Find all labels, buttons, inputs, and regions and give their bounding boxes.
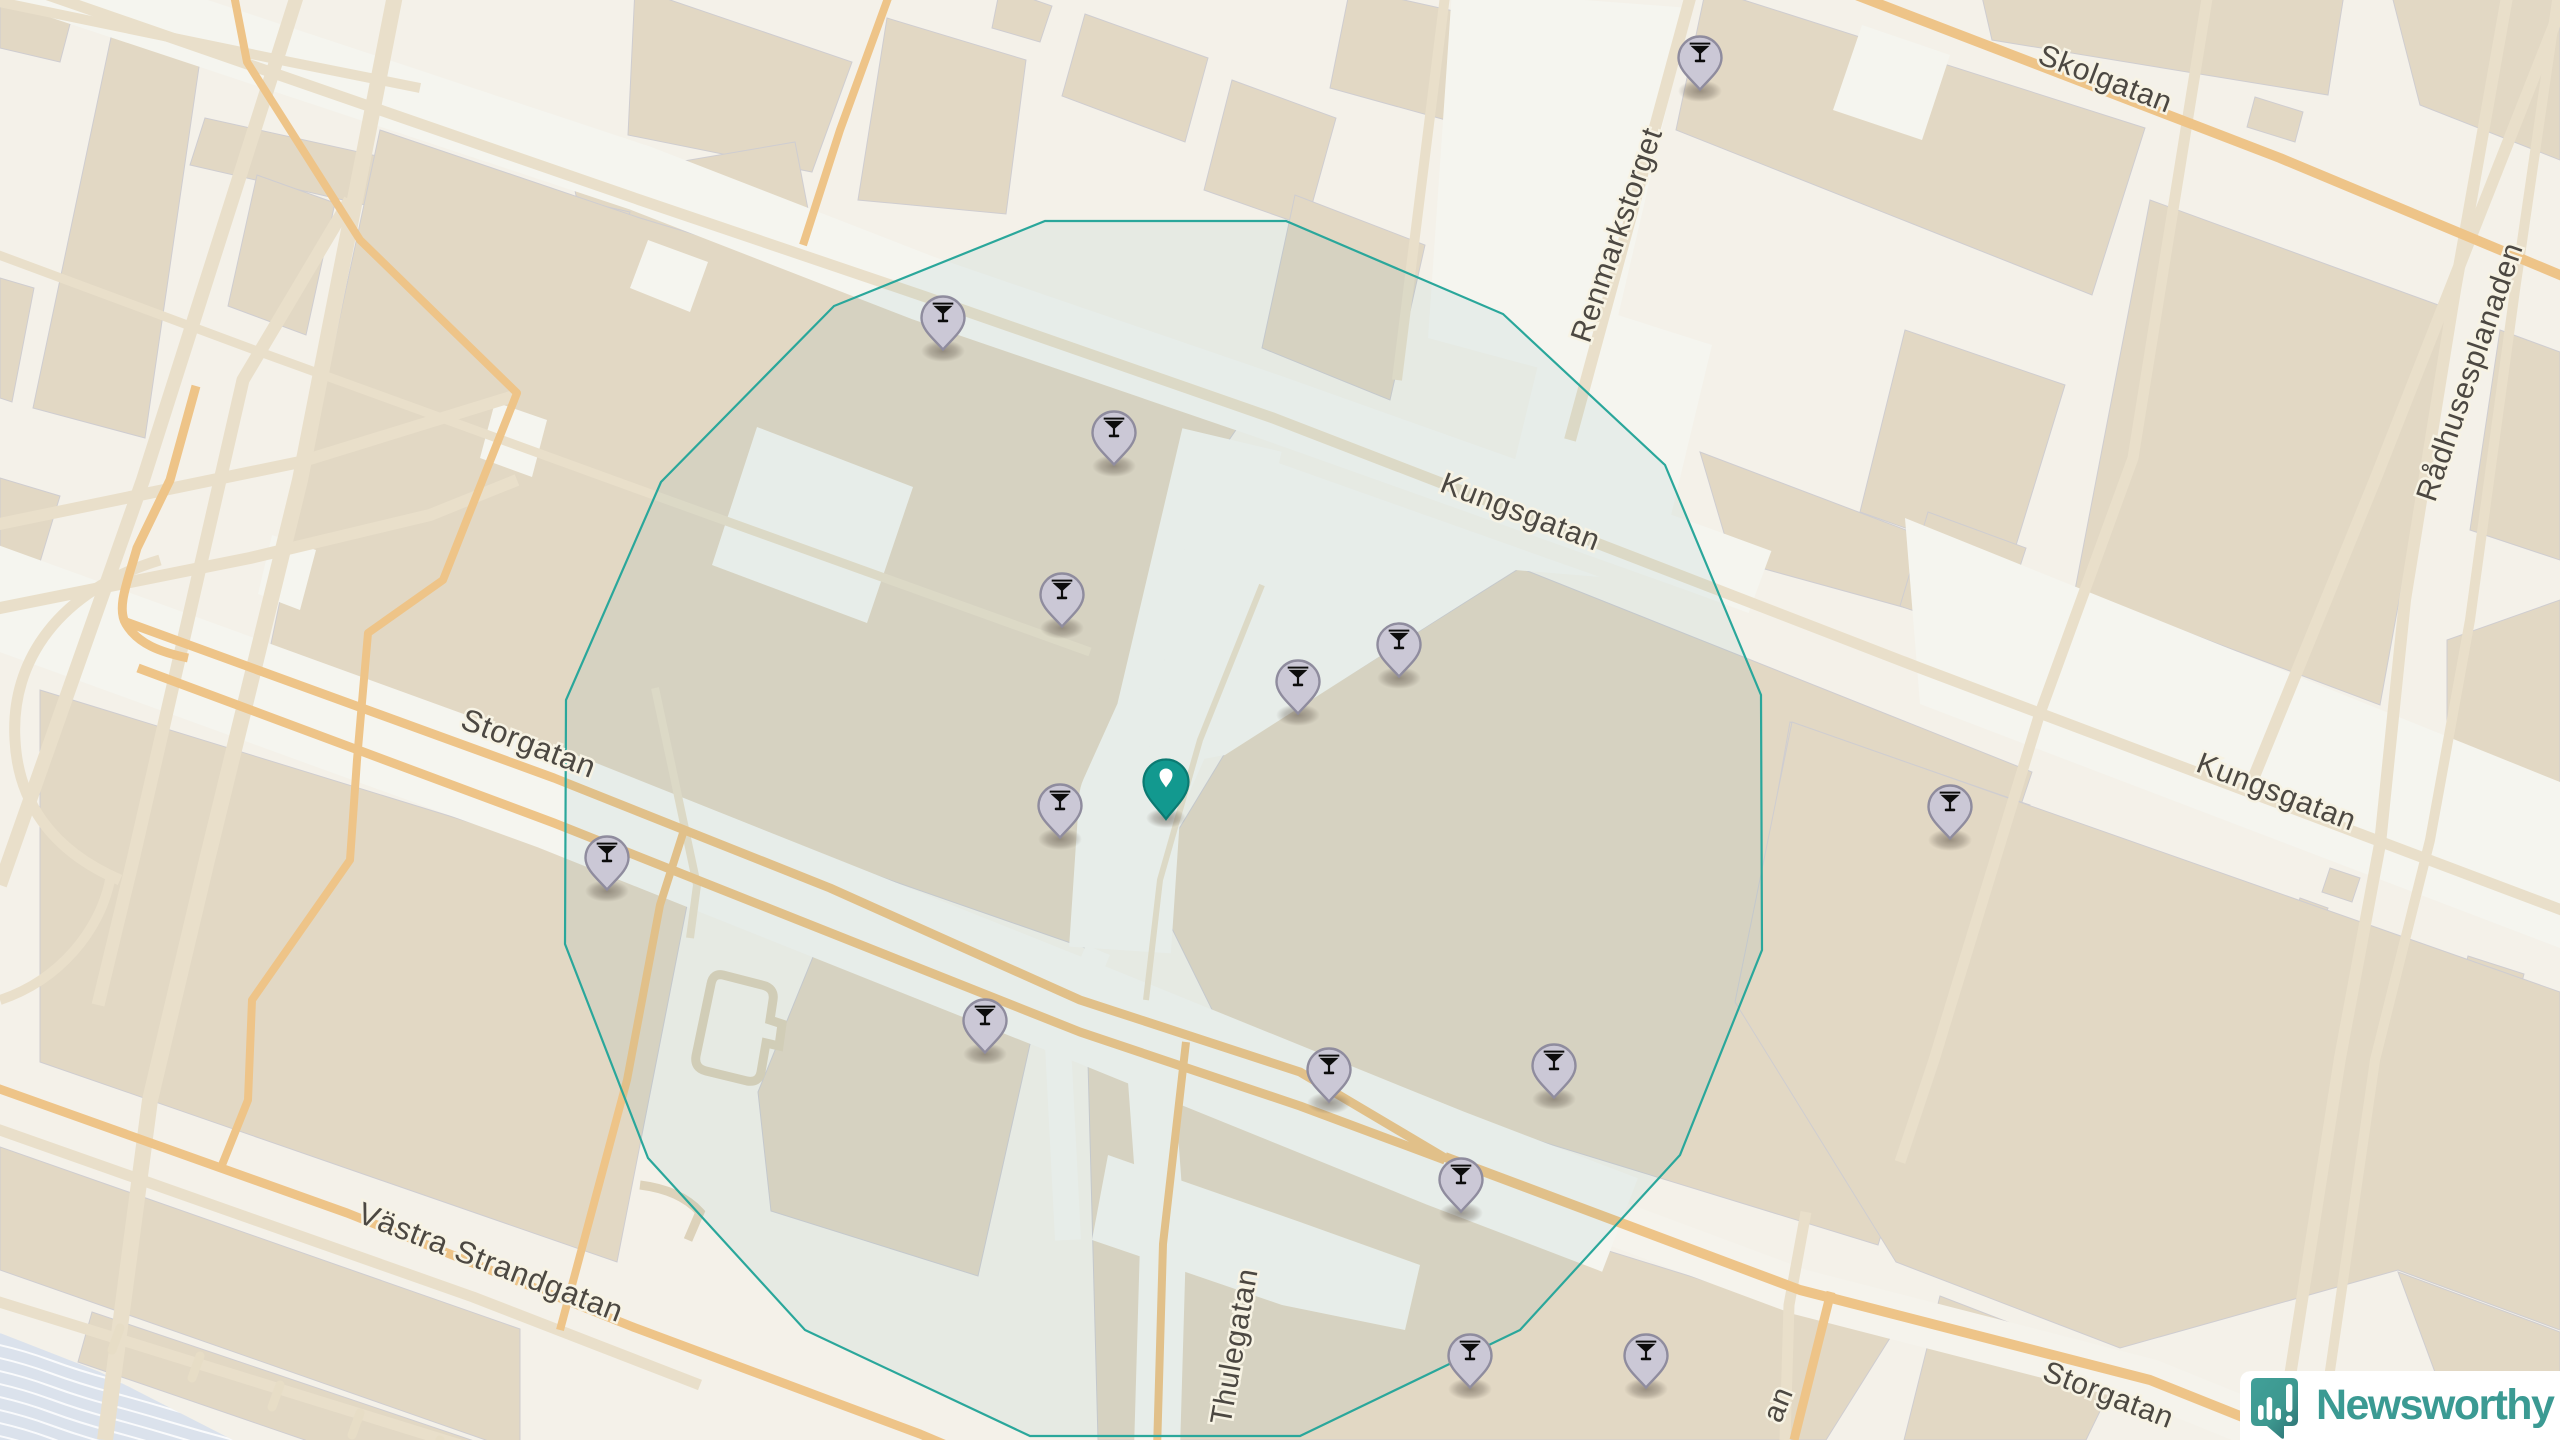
svg-text:Newsworthy: Newsworthy [2316, 1381, 2555, 1429]
